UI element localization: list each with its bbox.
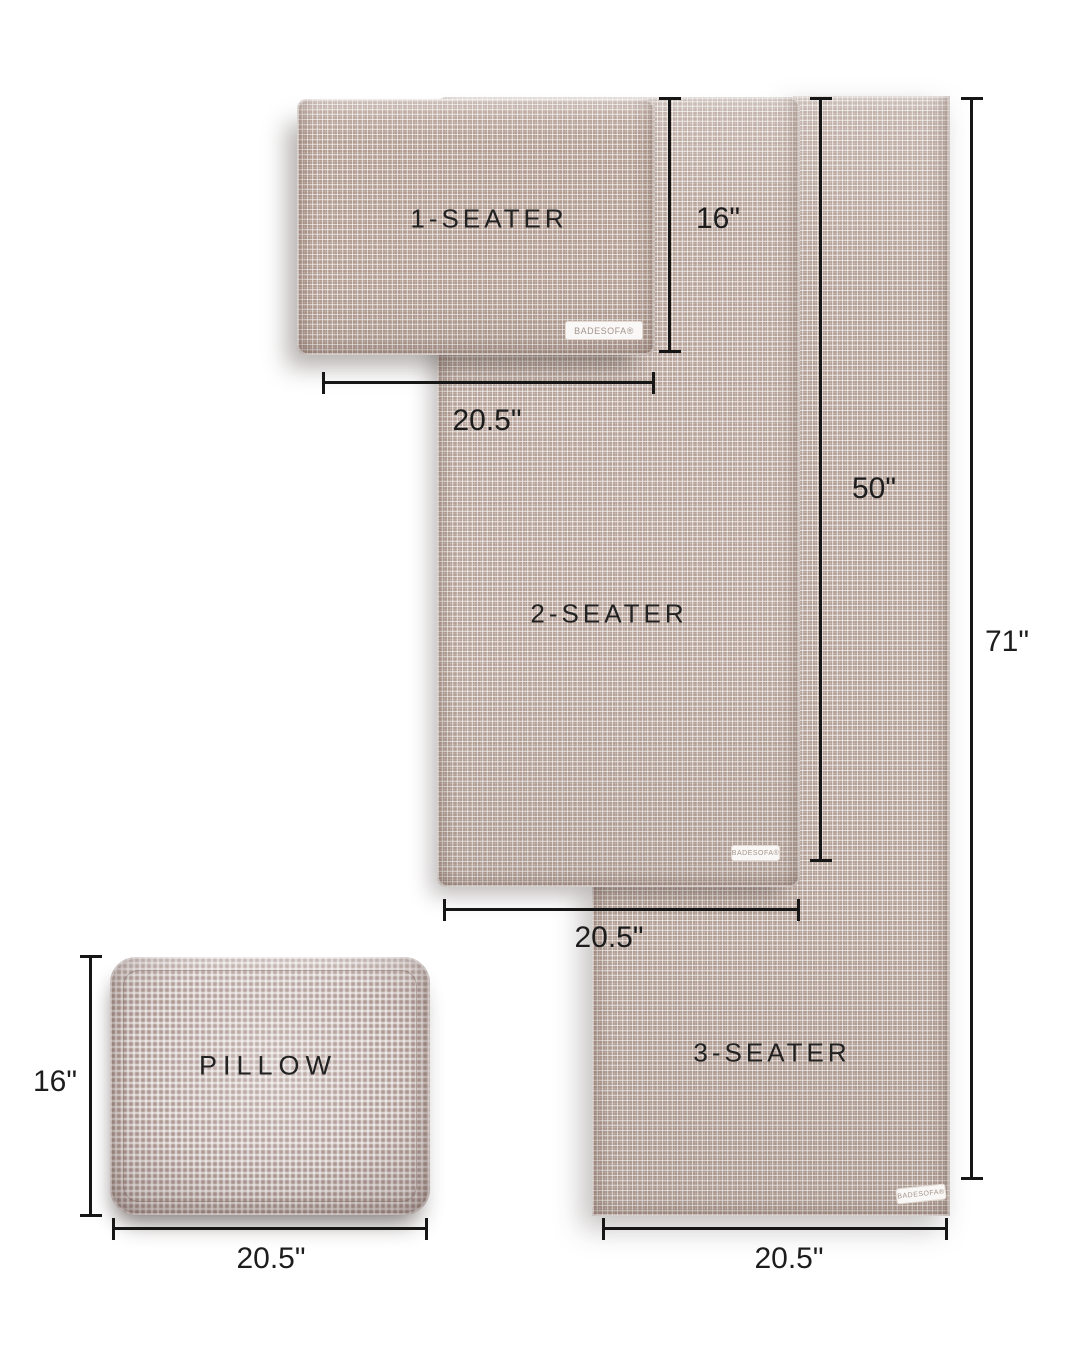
- dim-label-two-seater-width: 20.5": [574, 921, 643, 955]
- two-seater-label: 2-SEATER: [530, 599, 687, 630]
- dim-line-three-seater-height: [970, 97, 973, 1180]
- dim-label-pillow-width: 20.5": [236, 1242, 305, 1276]
- dim-line-pillow-width: [112, 1227, 428, 1230]
- dim-label-one-seater-height: 16": [696, 202, 740, 236]
- pillow-flange-seam: [123, 970, 417, 1202]
- dim-label-three-seater-width: 20.5": [754, 1242, 823, 1276]
- dim-line-two-seater-width: [443, 908, 800, 911]
- one-seater-label: 1-SEATER: [410, 204, 567, 235]
- pillow-panel: [110, 957, 430, 1215]
- dim-line-pillow-height: [89, 955, 92, 1217]
- brand-tag-one-seater: BADESOFA®: [565, 321, 643, 340]
- dim-label-two-seater-height: 50": [852, 472, 896, 506]
- dim-line-two-seater-height: [819, 97, 822, 862]
- pillow-shading: [110, 957, 430, 1215]
- size-guide-diagram: 1-SEATER 2-SEATER 3-SEATER PILLOW BADESO…: [0, 0, 1080, 1350]
- pillow-label: PILLOW: [199, 1051, 337, 1082]
- dim-label-three-seater-height: 71": [985, 625, 1029, 659]
- dim-line-three-seater-width: [602, 1227, 948, 1230]
- brand-tag-two-seater: BADESOFA®: [731, 845, 780, 861]
- dim-line-one-seater-width: [322, 381, 655, 384]
- dim-label-one-seater-width: 20.5": [452, 404, 521, 438]
- dim-line-one-seater-height: [668, 97, 671, 353]
- dim-label-pillow-height: 16": [33, 1065, 77, 1099]
- three-seater-label: 3-SEATER: [693, 1038, 850, 1069]
